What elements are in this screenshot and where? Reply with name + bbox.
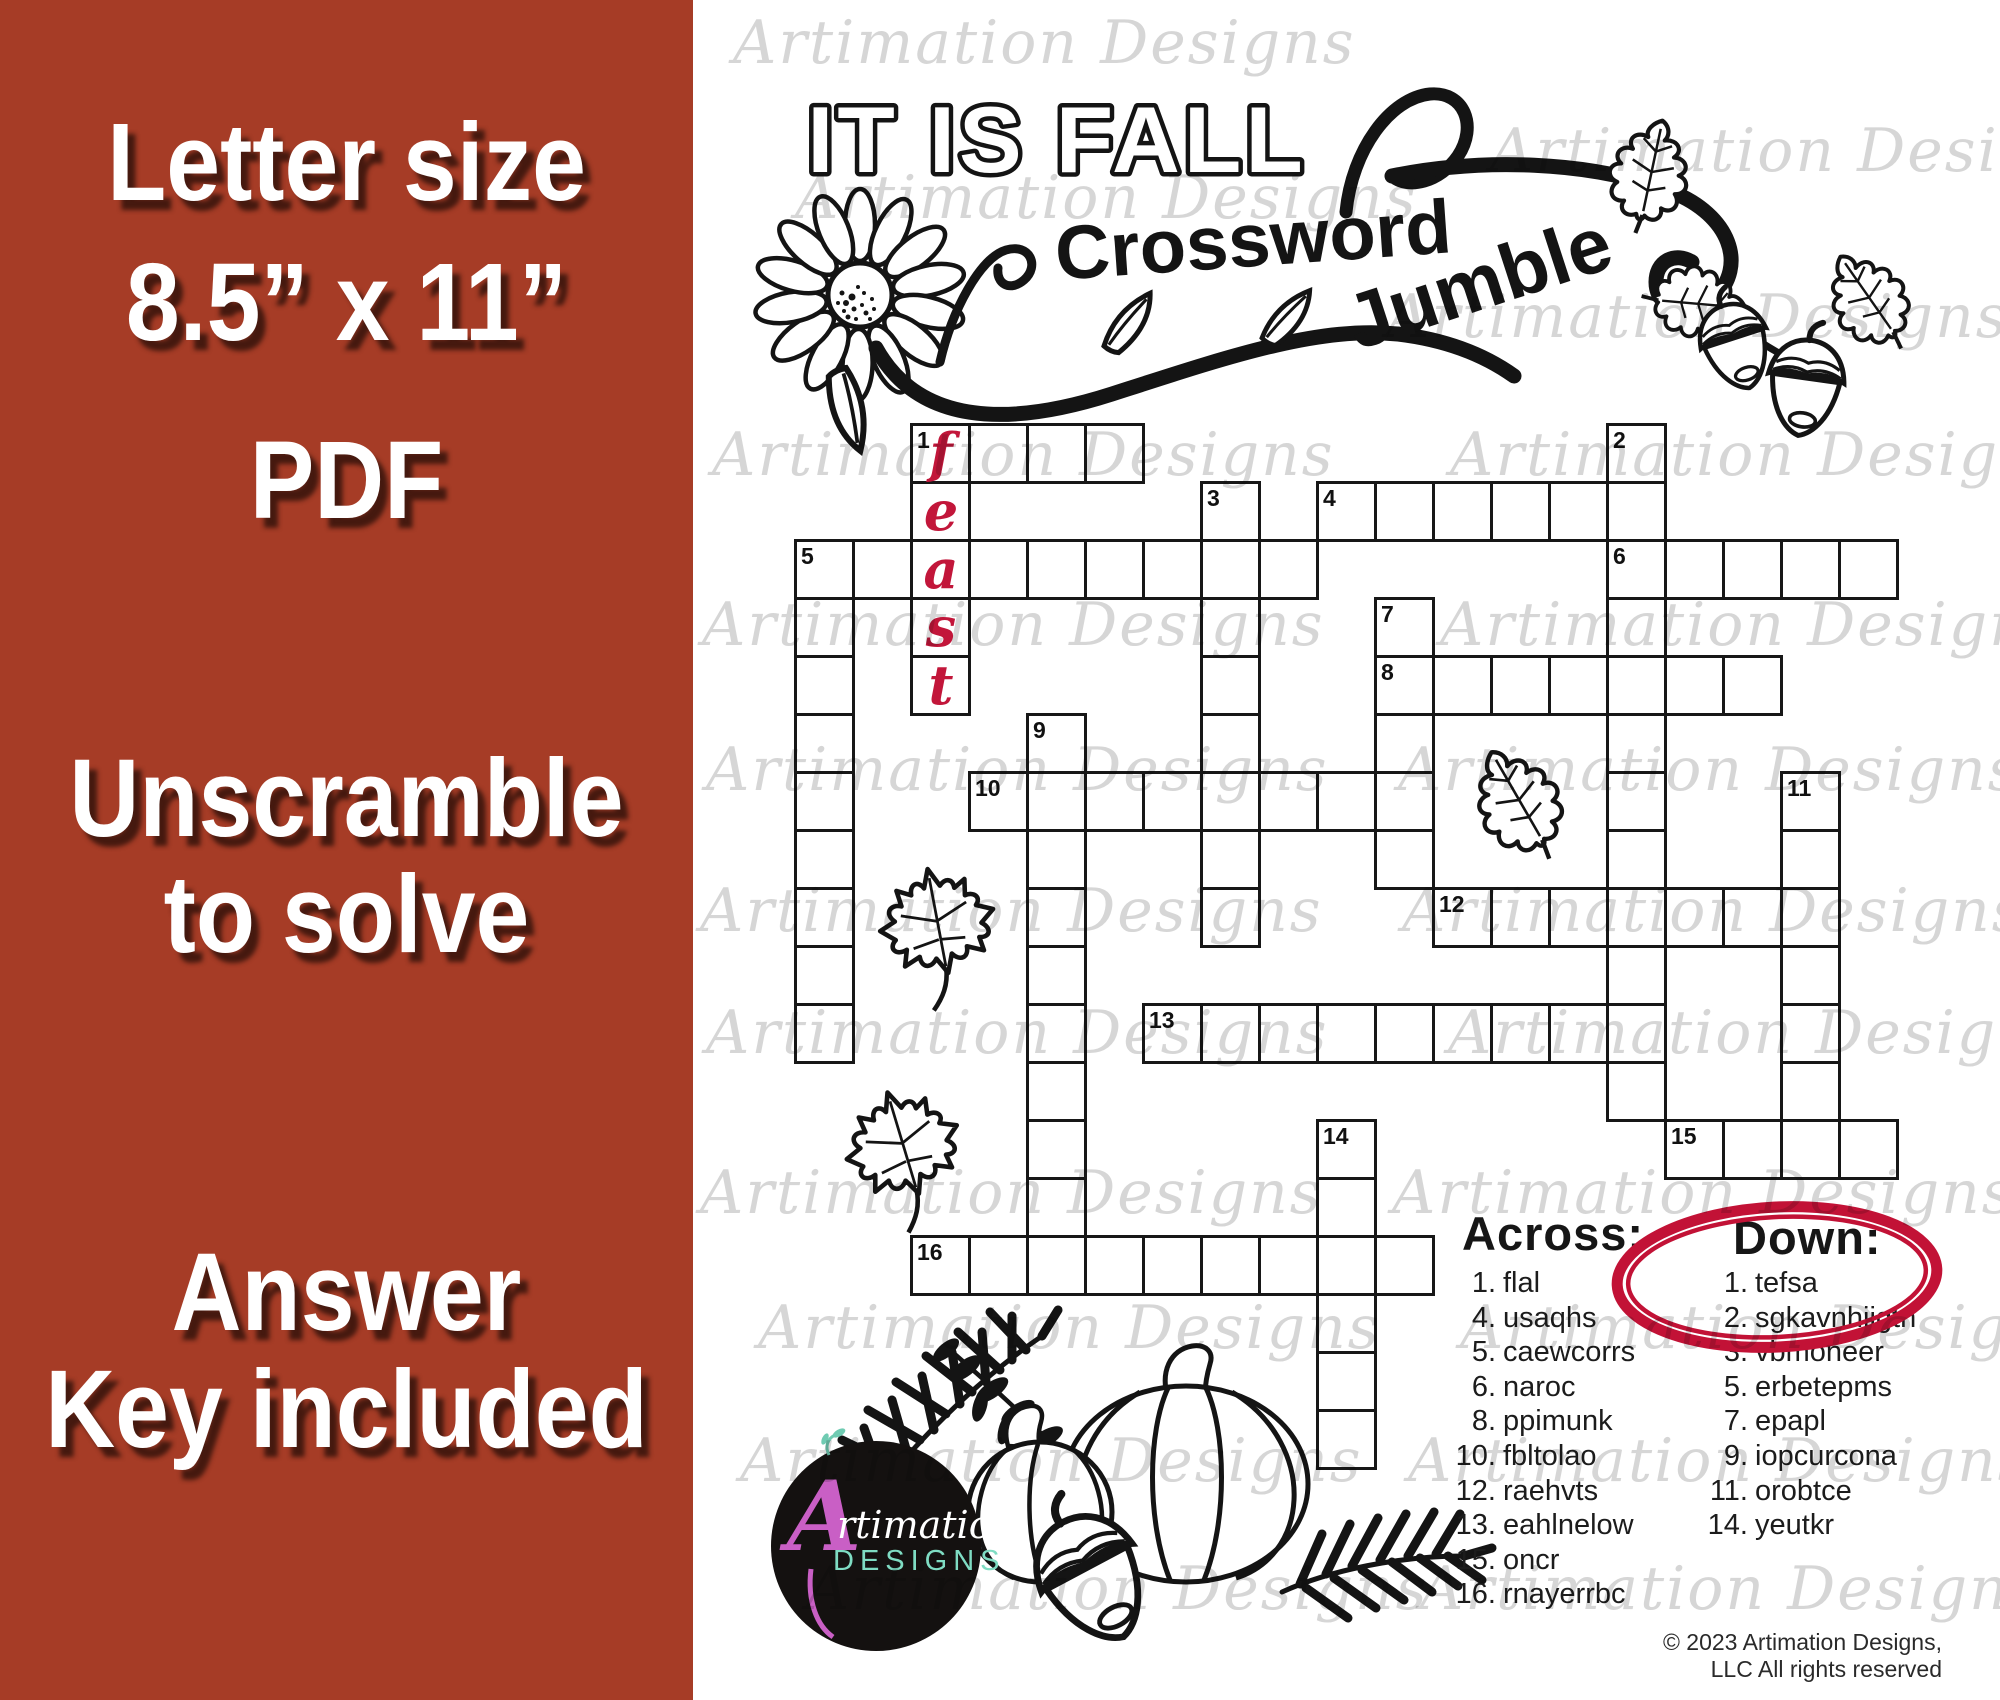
clue-item: 5.caewcorrs <box>1444 1335 1635 1370</box>
clue-item: 8.ppimunk <box>1444 1404 1635 1439</box>
scrambled-word: naroc <box>1503 1371 1576 1403</box>
clue-item: 11.orobtce <box>1692 1474 1916 1509</box>
crossword-entry-strip <box>910 1235 1435 1296</box>
brand-logo: A rtimation DESIGNS <box>771 1441 981 1651</box>
grid-clue-number: 5 <box>801 543 814 570</box>
grid-clue-number: 6 <box>1613 543 1626 570</box>
promo-line-to-solve: to solve <box>42 852 652 979</box>
crossword-entry-strip <box>1374 597 1435 890</box>
promo-line-answer: Answer <box>42 1230 652 1357</box>
clue-item-number: 11. <box>1692 1474 1748 1509</box>
grid-clue-number: 4 <box>1323 485 1336 512</box>
grid-clue-number: 12 <box>1439 891 1465 918</box>
grid-clue-number: 9 <box>1033 717 1046 744</box>
answer-letter: s <box>912 598 970 656</box>
grid-clue-number: 15 <box>1671 1123 1697 1150</box>
grid-clue-number: 14 <box>1323 1123 1349 1150</box>
scrambled-word: eahlnelow <box>1503 1509 1634 1541</box>
clue-item: 7.epapl <box>1692 1404 1916 1439</box>
clue-item: 14.yeutkr <box>1692 1508 1916 1543</box>
scrambled-word: raehvts <box>1503 1475 1598 1507</box>
across-clue-list: 1.flal4.usaqhs5.caewcorrs6.naroc8.ppimun… <box>1444 1266 1635 1612</box>
clue-item-number: 10. <box>1444 1439 1496 1474</box>
grid-clue-number: 7 <box>1381 601 1394 628</box>
clue-item: 15.oncr <box>1444 1543 1635 1578</box>
scrambled-word: orobtce <box>1755 1475 1852 1507</box>
clue-item-number: 3. <box>1692 1335 1748 1370</box>
scrambled-word: caewcorrs <box>1503 1336 1635 1368</box>
clue-item-number: 5. <box>1444 1335 1496 1370</box>
scrambled-word: yeutkr <box>1755 1509 1834 1541</box>
grid-clue-number: 11 <box>1787 775 1811 802</box>
logo-swash <box>810 1569 833 1637</box>
clue-item: 6.naroc <box>1444 1370 1635 1405</box>
crossword-entry-strip <box>794 539 855 1064</box>
clue-item-number: 12. <box>1444 1474 1496 1509</box>
down-heading: Down: <box>1733 1210 1882 1265</box>
clue-item-number: 9. <box>1692 1439 1748 1474</box>
scrambled-word: sgkavnhiigtn <box>1755 1302 1916 1334</box>
answer-letter: f <box>912 424 970 482</box>
crossword-entry-strip <box>1374 655 1783 716</box>
clue-item-number: 13. <box>1444 1508 1496 1543</box>
answer-letter: t <box>912 656 970 714</box>
clue-item-number: 14. <box>1692 1508 1748 1543</box>
clue-item-number: 5. <box>1692 1370 1748 1405</box>
logo-sprout-icon <box>771 1441 981 1651</box>
clue-item: 13.eahlnelow <box>1444 1508 1635 1543</box>
grid-clue-number: 2 <box>1613 427 1626 454</box>
scrambled-word: usaqhs <box>1503 1302 1597 1334</box>
scrambled-word: flal <box>1503 1267 1540 1299</box>
scrambled-word: vbmoneer <box>1755 1336 1884 1368</box>
clue-item: 1.tefsa <box>1692 1266 1916 1301</box>
clue-item: 1.flal <box>1444 1266 1635 1301</box>
clue-item: 12.raehvts <box>1444 1474 1635 1509</box>
crossword-entry-strip <box>1606 539 1899 600</box>
clue-item-number: 1. <box>1444 1266 1496 1301</box>
clue-item: 10.fbltolao <box>1444 1439 1635 1474</box>
scrambled-word: fbltolao <box>1503 1440 1597 1472</box>
clue-item-number: 1. <box>1692 1266 1748 1301</box>
clue-item: 4.usaqhs <box>1444 1301 1635 1336</box>
scrambled-word: oncr <box>1503 1544 1559 1576</box>
promo-line-pdf: PDF <box>42 418 652 545</box>
grid-clue-number: 3 <box>1207 485 1220 512</box>
clue-item: 3.vbmoneer <box>1692 1335 1916 1370</box>
crossword-entry-strip <box>1432 887 1841 948</box>
answer-letter: a <box>912 540 970 598</box>
grid-clue-number: 8 <box>1381 659 1394 686</box>
crossword-entry-strip <box>1142 1003 1667 1064</box>
promo-sidebar: Letter size 8.5” x 11” PDF Unscramble to… <box>0 0 693 1700</box>
listing-image: Letter size 8.5” x 11” PDF Unscramble to… <box>0 0 2000 1700</box>
scrambled-word: ppimunk <box>1503 1405 1613 1437</box>
answer-letter: e <box>912 482 970 540</box>
promo-line-letter-size: Letter size <box>42 100 652 227</box>
scrambled-word: iopcurcona <box>1755 1440 1897 1472</box>
clue-item-number: 6. <box>1444 1370 1496 1405</box>
crossword-entry-strip <box>968 771 1435 832</box>
down-clue-list: 1.tefsa2.sgkavnhiigtn3.vbmoneer5.erbetep… <box>1692 1266 1916 1543</box>
promo-line-unscramble: Unscramble <box>42 736 652 863</box>
across-heading: Across: <box>1462 1206 1644 1261</box>
clue-item: 2.sgkavnhiigtn <box>1692 1301 1916 1336</box>
clue-item-number: 2. <box>1692 1301 1748 1336</box>
grid-clue-number: 13 <box>1149 1007 1175 1034</box>
scrambled-word: tefsa <box>1755 1267 1818 1299</box>
page-title: IT IS FALL <box>807 87 1307 192</box>
scrambled-word: epapl <box>1755 1405 1826 1437</box>
clue-item-number: 7. <box>1692 1404 1748 1439</box>
copyright-text: © 2023 Artimation Designs, LLC All right… <box>1630 1629 1942 1683</box>
crossword-entry-strip <box>1316 481 1667 542</box>
grid-clue-number: 10 <box>975 775 1001 802</box>
promo-line-dimensions: 8.5” x 11” <box>42 240 652 367</box>
clue-item: 9.iopcurcona <box>1692 1439 1916 1474</box>
clue-item-number: 4. <box>1444 1301 1496 1336</box>
crossword-entry-strip <box>794 539 1319 600</box>
scrambled-word: erbetepms <box>1755 1371 1892 1403</box>
crossword-entry-strip <box>1664 1119 1899 1180</box>
clue-item-number: 15. <box>1444 1543 1496 1578</box>
clue-item-number: 8. <box>1444 1404 1496 1439</box>
clue-item: 5.erbetepms <box>1692 1370 1916 1405</box>
grid-clue-number: 16 <box>917 1239 943 1266</box>
clue-item: 16.rnayerrbc <box>1444 1577 1635 1612</box>
clue-item-number: 16. <box>1444 1577 1496 1612</box>
promo-line-key-included: Key included <box>42 1347 652 1474</box>
scrambled-word: rnayerrbc <box>1503 1578 1626 1610</box>
